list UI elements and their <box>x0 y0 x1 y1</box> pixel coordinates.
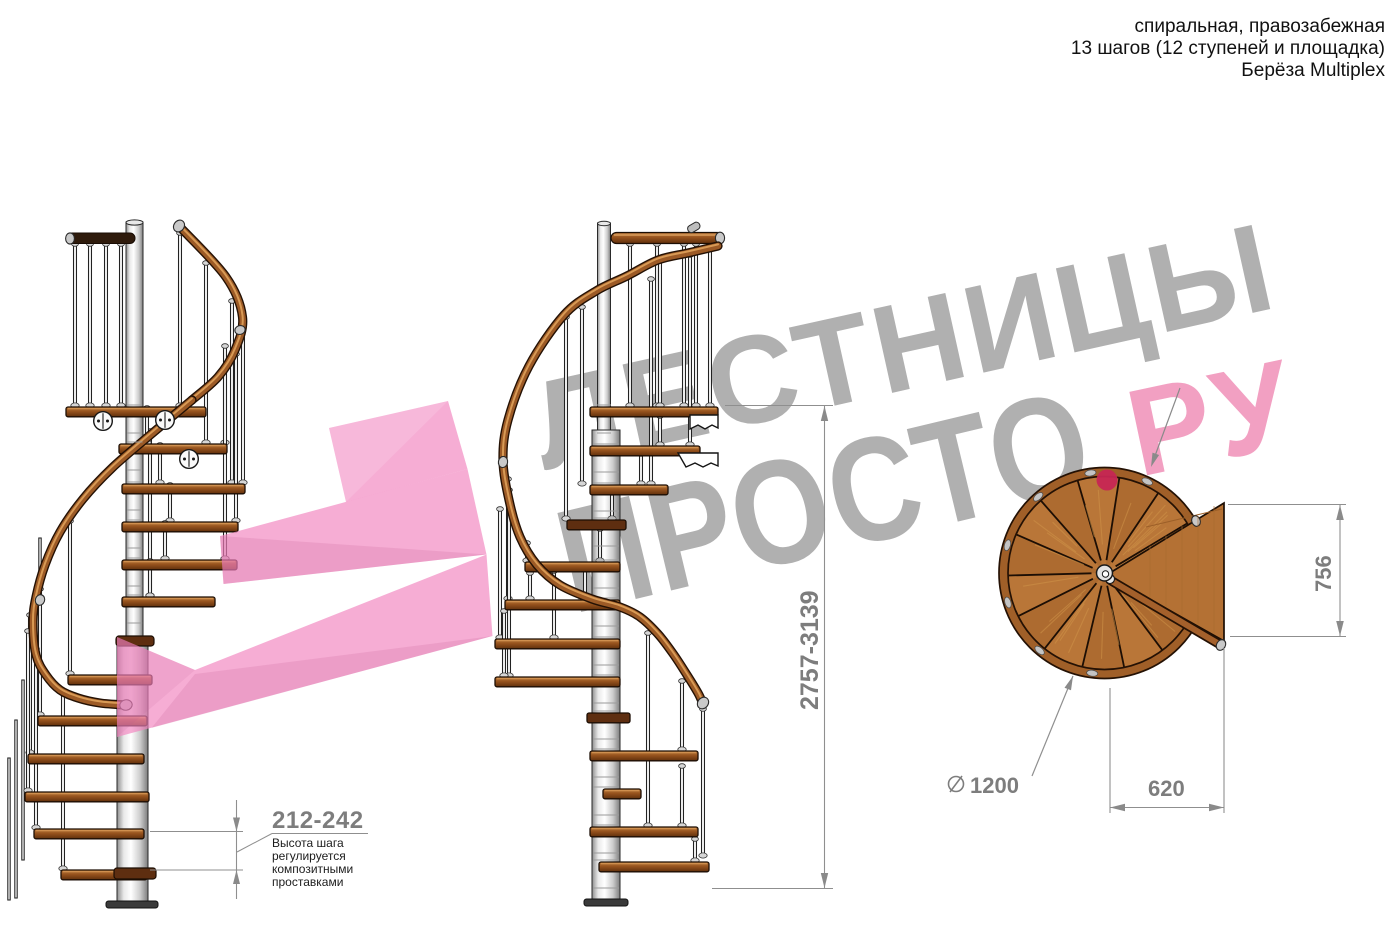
svg-text:1200: 1200 <box>970 773 1019 798</box>
svg-text:620: 620 <box>1148 776 1185 801</box>
svg-text:212-242: 212-242 <box>272 807 364 834</box>
svg-text:756: 756 <box>1311 555 1336 592</box>
svg-text:Берёза Multiplex: Берёза Multiplex <box>1241 60 1385 81</box>
svg-text:13 шагов (12 ступеней и площад: 13 шагов (12 ступеней и площадка) <box>1071 38 1385 59</box>
svg-text:Высота шагарегулируетсякомпози: Высота шагарегулируетсякомпозитнымипрост… <box>272 836 353 889</box>
svg-text:2757-3139: 2757-3139 <box>796 590 824 710</box>
svg-text:спиральная, правозабежная: спиральная, правозабежная <box>1135 16 1385 37</box>
